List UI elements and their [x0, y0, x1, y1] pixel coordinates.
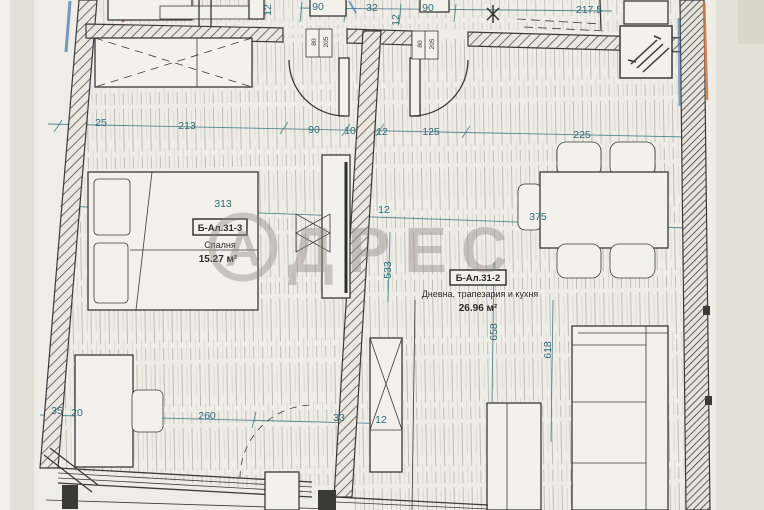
pillow [94, 179, 130, 235]
dimension-label: 217.5 [576, 4, 602, 16]
svg-text:80: 80 [417, 40, 424, 48]
door-size-tag-1: 80 205 [306, 29, 332, 57]
dimension-label: 90 [308, 124, 320, 136]
watermark-brand: ДРЕС [288, 214, 521, 286]
svg-text:205: 205 [323, 36, 330, 47]
watermark-logo-letter: А [225, 221, 261, 277]
bedroom-door-leaf [339, 58, 349, 116]
dimension-label: 90 [312, 1, 324, 13]
dining-table [540, 172, 668, 248]
door-size-tag-2: 80 205 [412, 31, 438, 59]
living-name: Дневна, трапезария и кухня [422, 289, 539, 299]
ac-unit [624, 1, 668, 24]
dining-chair [557, 244, 601, 278]
floor-plan-drawing: 80 205 80 205 [0, 0, 764, 510]
dimension-label: 658 [488, 323, 500, 341]
dimension-label: 12 [376, 126, 388, 138]
watermark: А ДРЕС [212, 214, 521, 286]
dimension-label: 375 [529, 211, 547, 223]
desk-chair [132, 390, 163, 432]
dimension-label: 313 [214, 198, 232, 210]
sofa [572, 326, 668, 510]
dining-chair [557, 142, 601, 176]
dimension-label: 33 [333, 412, 345, 424]
dimension-label: 618 [542, 341, 554, 359]
dimension-label: 32 [366, 2, 378, 14]
balcony-door-leaf [265, 472, 299, 510]
counter-top-left [160, 6, 254, 19]
scan-right-margin [716, 0, 764, 510]
dining-chair [610, 142, 655, 176]
wardrobe [95, 38, 252, 87]
tall-cabinet [370, 338, 402, 472]
dimension-label: 25 [95, 117, 107, 129]
svg-text:80: 80 [311, 38, 318, 46]
dimension-label: 213 [178, 120, 196, 132]
dimension-label: 35 [51, 405, 63, 417]
scan-right-corner [738, 0, 764, 44]
window-jamb-dark [318, 490, 336, 510]
svg-text:205: 205 [429, 38, 436, 49]
floor-plan-scan: 80 205 80 205 [0, 0, 764, 510]
dimension-label: 12 [390, 14, 402, 26]
dimension-label: 12 [262, 4, 274, 16]
dimension-label: 90 [422, 2, 434, 14]
dining-chair [610, 244, 655, 278]
scan-left-shadow [10, 0, 34, 510]
shaft [620, 26, 672, 78]
dining-chair [518, 184, 542, 230]
wall-tick-right-1 [703, 306, 710, 315]
dimension-label: 260 [198, 410, 216, 422]
window-jamb-dark [62, 485, 78, 509]
wall-tick-right-2 [705, 396, 712, 405]
pen-blue-right [679, 18, 680, 106]
dimension-label: 10 [344, 125, 356, 137]
living-door-leaf [410, 58, 420, 116]
living-area: 26.96 м² [459, 303, 498, 314]
dimension-label: 20 [71, 407, 83, 419]
dimension-label: 125 [422, 126, 440, 138]
dimension-label: 225 [573, 129, 591, 141]
dimension-label: 12 [375, 414, 387, 426]
pillow [94, 243, 128, 303]
kitchen-island [487, 403, 541, 510]
